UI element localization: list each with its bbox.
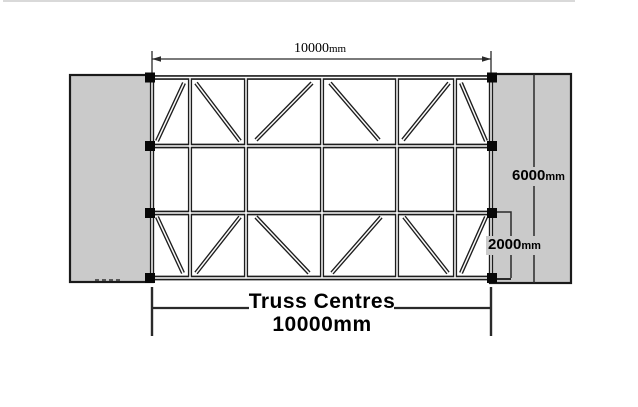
truss-member-core — [157, 83, 184, 141]
truss-member-core — [403, 83, 449, 140]
left-wall-panel — [70, 75, 153, 282]
truss-node-plate — [487, 273, 497, 283]
diagram-linework — [0, 0, 638, 407]
right-height-unit: mm — [545, 171, 565, 183]
truss-member-core — [330, 83, 379, 140]
right-offset-value: 2000 — [488, 236, 521, 253]
right-offset-unit: mm — [521, 240, 541, 252]
right-offset-dimension-label: 2000mm — [486, 236, 543, 255]
truss-member-core — [157, 217, 183, 273]
top-width-dimension-label: 10000mm — [240, 41, 400, 57]
right-height-value: 6000 — [512, 167, 545, 184]
truss-member-core — [461, 83, 486, 141]
truss-node-plate — [145, 73, 155, 83]
top-width-unit: mm — [329, 43, 346, 55]
truss-elevation-diagram: 10000mm 6000mm 2000mm Truss Centres 1000… — [0, 0, 638, 407]
truss-node-plate — [487, 73, 497, 83]
truss-member-core — [332, 217, 381, 273]
right-height-dimension-label: 6000mm — [510, 167, 567, 186]
truss-member-core — [196, 83, 240, 141]
truss-node-plate — [487, 208, 497, 218]
truss-member-core — [404, 217, 448, 273]
truss-member-core — [256, 83, 312, 140]
truss-centres-title: Truss Centres — [222, 291, 422, 313]
truss-node-plate — [145, 273, 155, 283]
top-dim-arrow-left — [152, 56, 161, 62]
truss-member-core — [256, 217, 309, 273]
truss-member-core — [196, 217, 240, 273]
truss-centres-value: 10000mm — [222, 314, 422, 336]
truss-member-core — [461, 217, 486, 273]
truss-node-plate — [145, 208, 155, 218]
truss-node-plate — [487, 141, 497, 151]
top-dim-arrow-right — [482, 56, 491, 62]
truss-node-plate — [145, 141, 155, 151]
top-width-value: 10000 — [294, 41, 329, 56]
